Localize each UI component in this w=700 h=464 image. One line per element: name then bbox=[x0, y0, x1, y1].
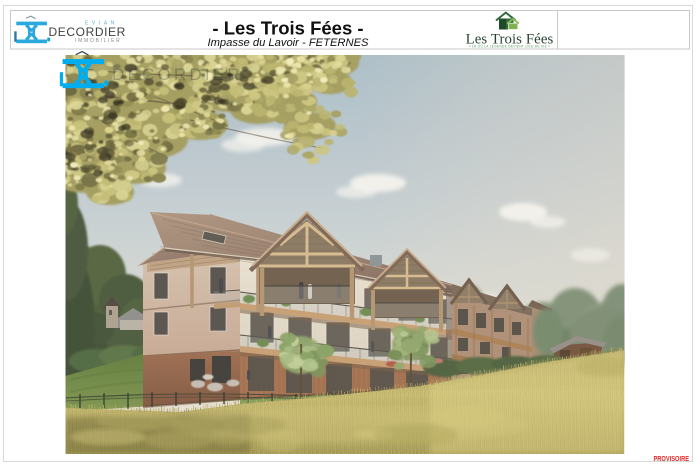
svg-text:DECORDIER: DECORDIER bbox=[112, 65, 243, 84]
svg-text:- Les Trois Fées -: - Les Trois Fées - bbox=[212, 18, 363, 39]
svg-text:IMMOBILIER: IMMOBILIER bbox=[75, 38, 121, 44]
svg-text:DECORDIER: DECORDIER bbox=[49, 25, 126, 39]
svg-text:Impasse du Lavoir - FETERNES: Impasse du Lavoir - FETERNES bbox=[207, 37, 369, 49]
svg-text:PROVISOIRE: PROVISOIRE bbox=[654, 454, 690, 463]
svg-text:« LÀ OÙ LA LÉGENDE DEVIENT LIE: « LÀ OÙ LA LÉGENDE DEVIENT LIEU DE VIE » bbox=[469, 44, 551, 49]
